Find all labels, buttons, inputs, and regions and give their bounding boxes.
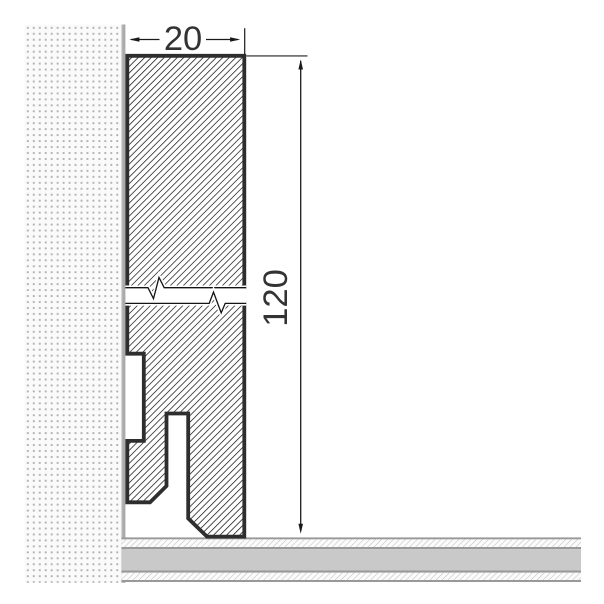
svg-text:120: 120 [257, 269, 295, 327]
svg-text:20: 20 [164, 20, 202, 58]
